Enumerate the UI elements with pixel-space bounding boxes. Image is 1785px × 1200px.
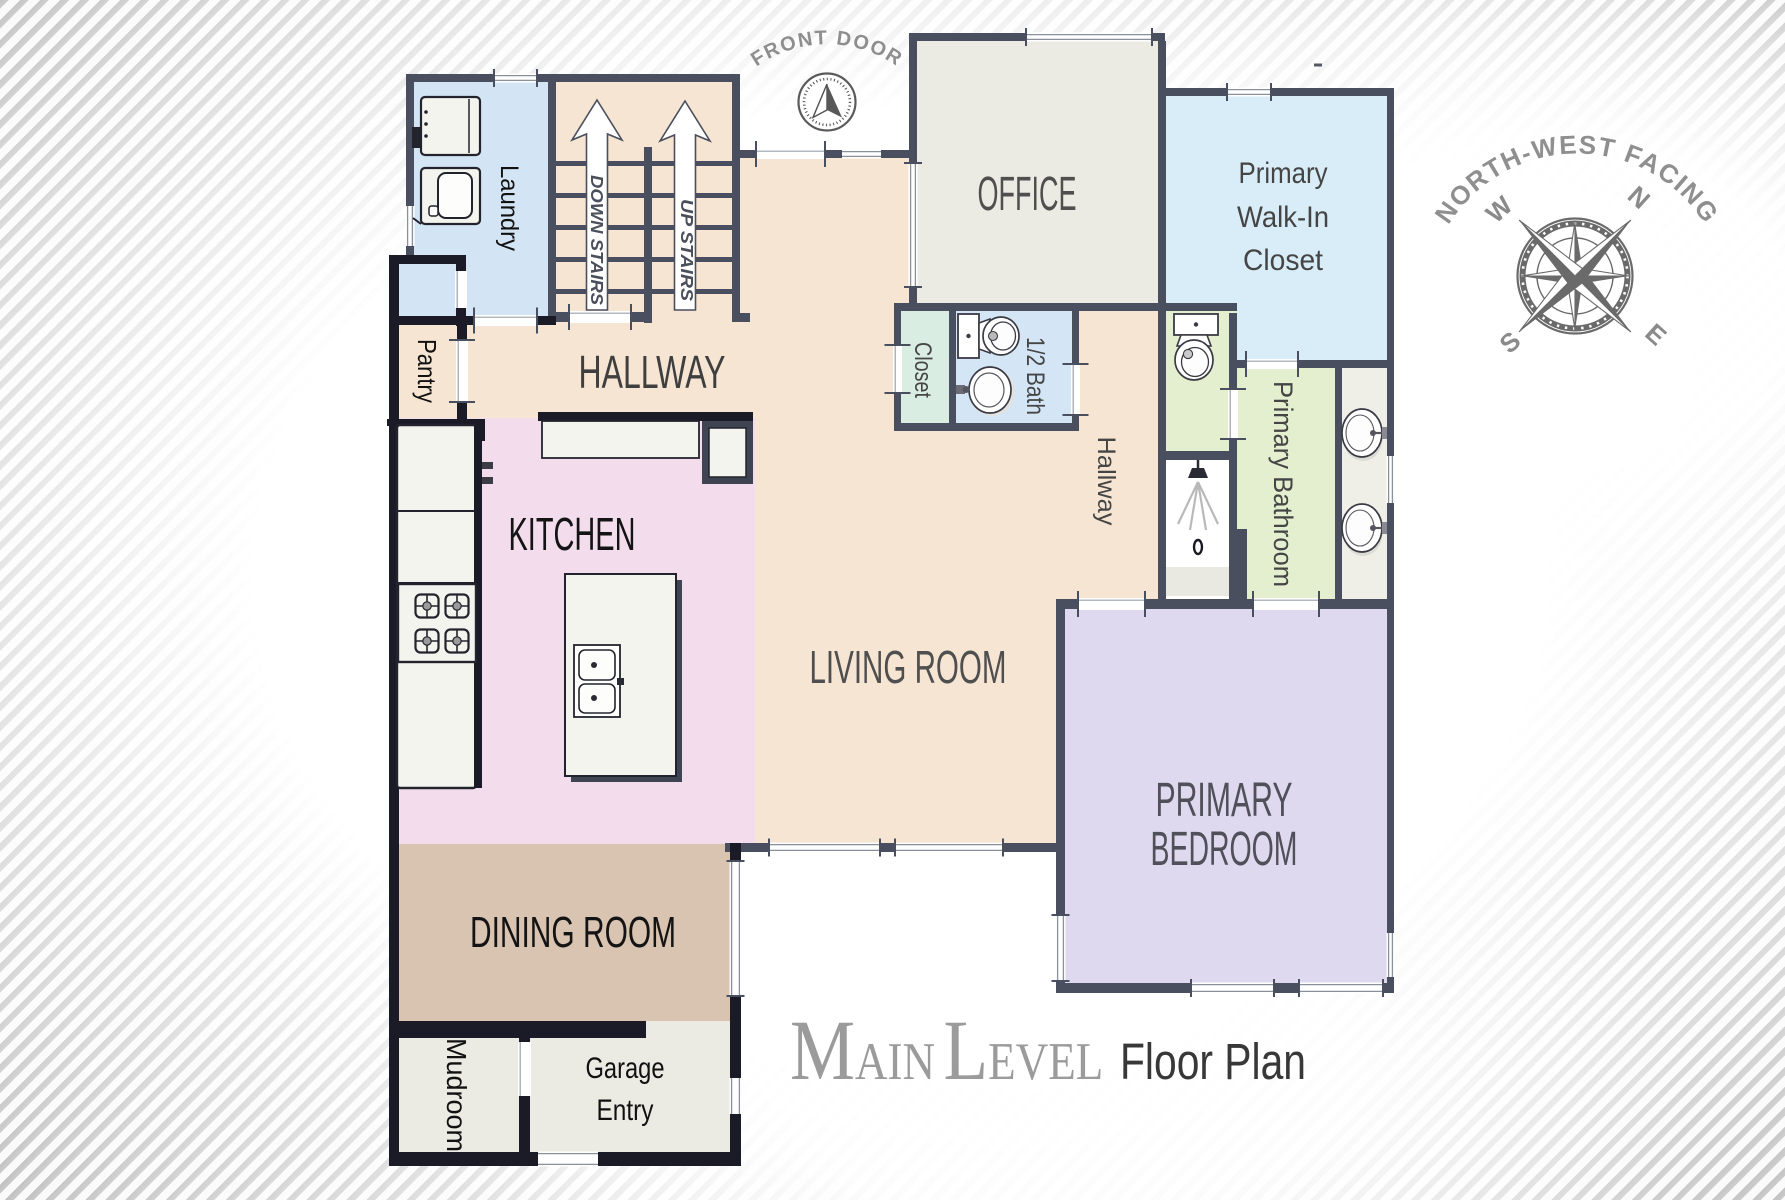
svg-text:FRONT DOOR: FRONT DOOR bbox=[747, 27, 907, 71]
svg-text:Mudroom: Mudroom bbox=[441, 1038, 472, 1152]
svg-text:PRIMARY: PRIMARY bbox=[1156, 774, 1293, 827]
svg-text:UP STAIRS: UP STAIRS bbox=[677, 199, 697, 301]
svg-text:HALLWAY: HALLWAY bbox=[579, 346, 726, 398]
svg-text:DINING ROOM: DINING ROOM bbox=[470, 908, 676, 957]
svg-text:KITCHEN: KITCHEN bbox=[509, 508, 636, 560]
svg-text:Entry: Entry bbox=[597, 1094, 654, 1127]
svg-text:LIVING ROOM: LIVING ROOM bbox=[810, 641, 1007, 693]
svg-text:Primary Bathroom: Primary Bathroom bbox=[1268, 381, 1298, 587]
svg-text:OFFICE: OFFICE bbox=[978, 168, 1077, 221]
svg-text:Hallway: Hallway bbox=[1092, 437, 1120, 527]
svg-text:Closet: Closet bbox=[909, 342, 936, 398]
svg-text:E: E bbox=[1640, 317, 1673, 351]
svg-text:W: W bbox=[1480, 190, 1519, 229]
svg-text:Floor Plan: Floor Plan bbox=[1120, 1033, 1306, 1090]
svg-text:N: N bbox=[1622, 180, 1656, 215]
svg-text:Garage: Garage bbox=[586, 1052, 665, 1085]
svg-text:NORTH-WEST FACING: NORTH-WEST FACING bbox=[1429, 129, 1726, 228]
svg-text:S: S bbox=[1493, 325, 1526, 359]
svg-text:Closet: Closet bbox=[1243, 244, 1324, 277]
svg-text:BEDROOM: BEDROOM bbox=[1151, 823, 1298, 876]
svg-text:Walk-In: Walk-In bbox=[1237, 201, 1329, 234]
svg-text:Laundry: Laundry bbox=[495, 165, 523, 251]
svg-text:1/2 Bath: 1/2 Bath bbox=[1021, 337, 1049, 415]
svg-text:Pantry: Pantry bbox=[412, 339, 442, 403]
svg-text:Primary: Primary bbox=[1239, 157, 1328, 190]
svg-text:MAINLEVEL: MAINLEVEL bbox=[790, 1004, 1103, 1099]
svg-text:DOWN STAIRS: DOWN STAIRS bbox=[587, 175, 607, 305]
